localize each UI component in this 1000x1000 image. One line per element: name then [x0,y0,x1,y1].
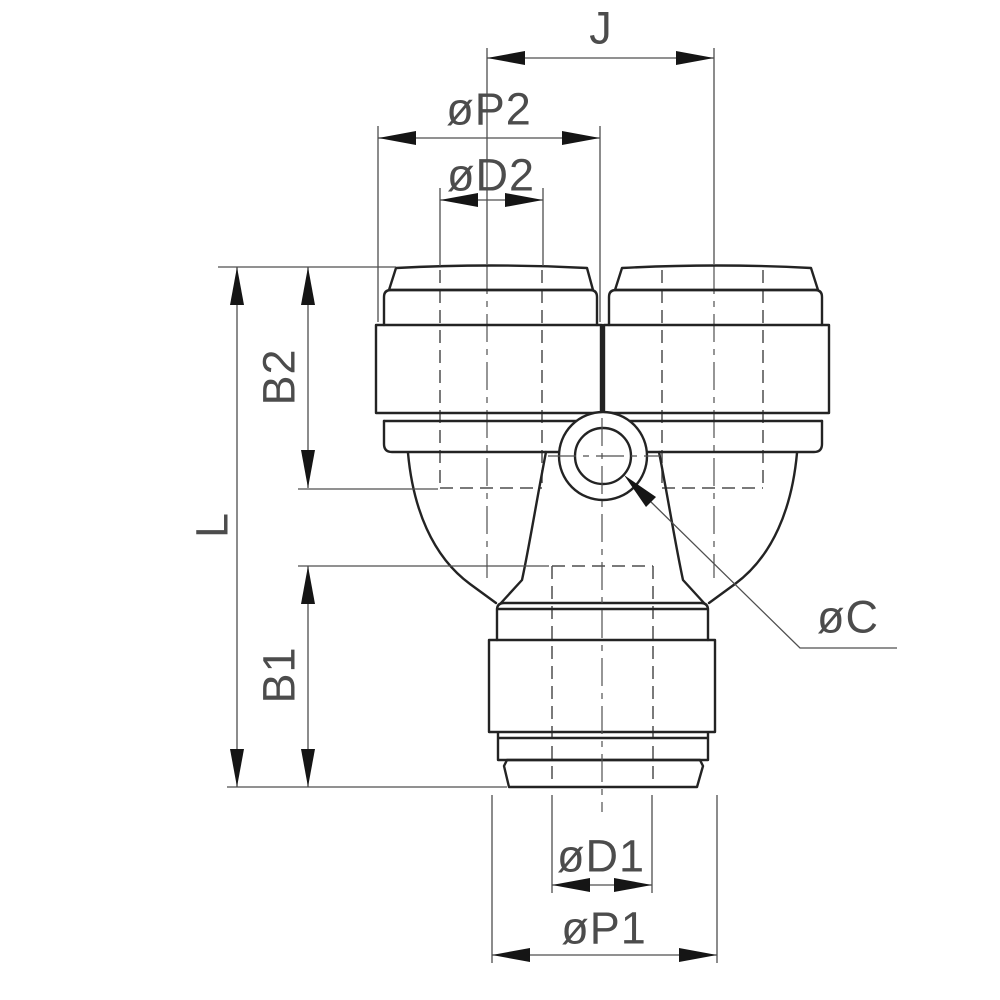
p2-arrow-right [562,131,600,145]
dim-label-p2: øP2 [446,87,532,132]
top-left-release-cap [389,266,593,291]
p2-arrow-left [378,131,416,145]
top-right-release-cap [615,266,818,291]
b2-arrow-top [301,267,315,305]
dim-label-b1: B1 [257,646,302,703]
dim-label-l: L [190,512,235,538]
dim-label-b2: B2 [257,348,302,405]
top-right-bore-hidden-line [662,270,763,488]
b2-arrow-bottom [301,450,315,488]
p1-arrow-left [492,948,530,962]
b1-arrow-bottom [301,749,315,787]
bottom-lower-band [498,733,708,760]
b1-arrow-top [301,566,315,604]
y-body-left-outer-curve [408,453,496,603]
l-arrow-top [230,267,244,305]
dim-label-p1: øP1 [561,906,647,951]
bottom-release-cap [504,760,703,787]
y-body-right-inner-curve [659,452,704,603]
technical-drawing-canvas: J øP2 øD2 B2 L B1 øC øD1 øP1 [0,0,1000,1000]
p1-arrow-right [679,948,717,962]
top-left-bore-hidden-line [440,270,542,488]
y-body-left-inner-curve [501,452,546,603]
top-right-main-band [604,325,829,413]
top-left-collar [384,290,597,325]
dim-label-d1: øD1 [557,834,645,879]
y-body-right-outer-curve [709,453,797,603]
l-arrow-bottom [230,749,244,787]
j-arrow-right [676,51,714,65]
dim-label-d2: øD2 [447,153,535,198]
j-arrow-left [487,51,525,65]
top-right-collar [609,290,822,325]
center-boss [548,412,660,812]
dim-label-j: J [589,6,613,51]
dim-label-c: øC [817,595,879,640]
top-left-main-band [376,325,601,413]
dimension-lines [237,58,897,955]
